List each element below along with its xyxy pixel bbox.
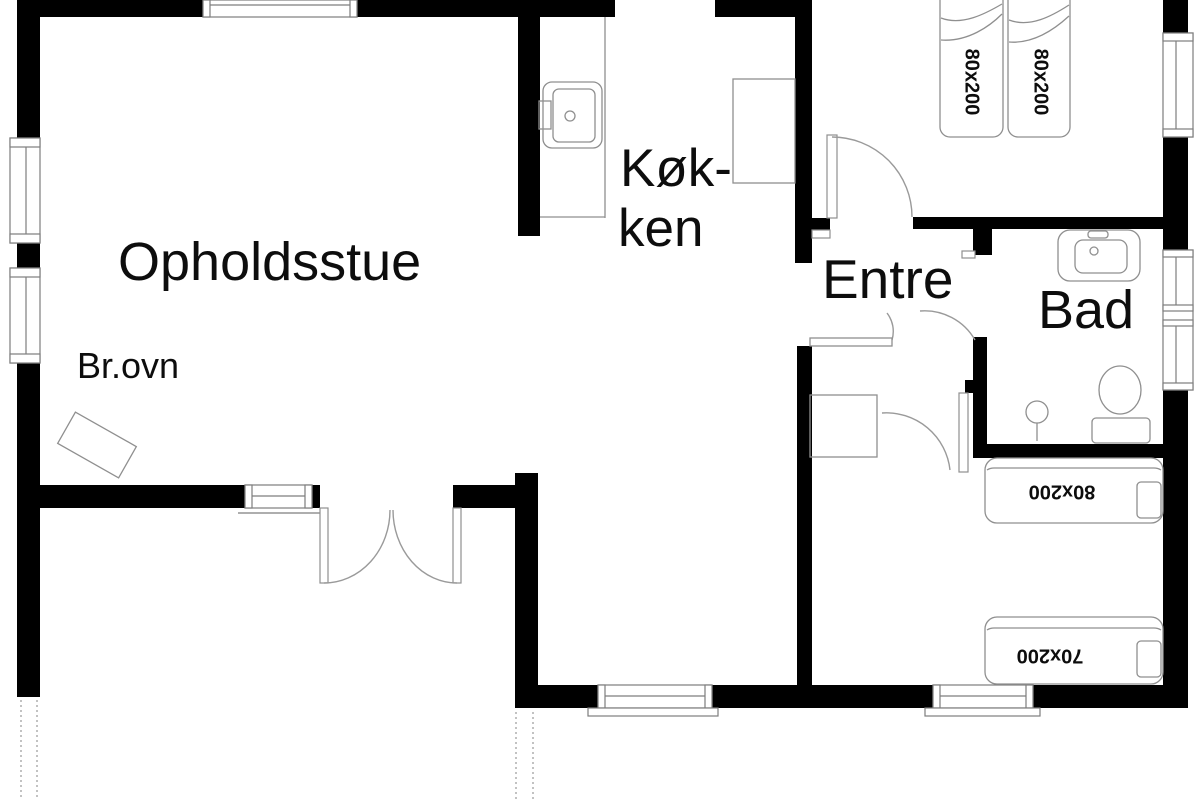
entry-shelf-arc [887,313,893,340]
floor-plan: Opholdsstue Br.ovn Køk- ken Entre Bad 80… [0,0,1200,800]
bed-size-label-bedroom2-bottom: 70x200 [1017,644,1084,667]
terrace-door-right-arc [393,510,457,583]
window-top [203,0,357,17]
entry-closet [810,395,877,457]
wall-top-left [17,0,203,17]
wall-left-upper [17,0,40,138]
wall-bottom-c [1033,685,1188,708]
wall-bathroom-west [973,337,987,445]
bedroom2-door-arc [882,413,950,470]
bedroom1-door-jamb [812,230,830,238]
window-left-lower [10,268,40,363]
wall-livingroom-south-a [40,485,245,508]
bed-size-label-bedroom1-right: 80x200 [1029,49,1052,116]
wall-bathroom-west-notch [965,380,973,393]
bedroom1-door-leaf [827,135,837,218]
window-bottom-entry [588,685,718,716]
wall-right-mid [1163,137,1188,250]
bathroom-label: Bad [1038,283,1134,337]
entry-shelf [810,338,892,346]
wall-left-mullion [17,243,40,268]
window-left-upper [10,138,40,243]
wall-right-lower [1163,390,1188,708]
wall-top-kitchen [715,0,812,17]
wall-left-lower [17,363,40,697]
floor-drain-icon [1026,401,1048,441]
window-bathroom [1163,250,1193,390]
wall-nub-bedroom1-door [812,218,830,230]
wood-stove-icon [58,412,137,478]
wall-bottom-b [712,685,933,708]
wall-top-middle [357,0,615,17]
kitchen-sink-icon [539,82,602,148]
bed-size-label-bedroom1-left: 80x200 [960,49,983,116]
wall-livingroom-kitchen [518,17,540,236]
wall-top-right-corner [1163,0,1188,33]
wood-stove-label: Br.ovn [77,348,179,384]
wall-kitchen-entry [795,17,812,263]
bathroom-door-arc-upper [920,311,975,340]
living-room-label: Opholdsstue [118,235,421,289]
bathroom-door-leaf [959,393,968,472]
terrace-door-left-arc [324,510,390,583]
bathroom-doorway-jamb [962,251,975,258]
wall-livingroom-south-b [312,485,320,508]
wall-entry-west [515,473,538,708]
wall-bathroom-west-stub [973,229,992,255]
roof-overhang-lines [21,700,533,799]
bed-size-label-bedroom2-top: 80x200 [1029,480,1096,503]
bedroom1-door-arc [832,137,912,217]
window-bottom-bedroom2 [925,685,1040,716]
wall-livingroom-south-c [453,485,515,508]
entry-label: Entre [822,252,953,307]
refrigerator-icon [733,79,795,183]
window-right-upper [1163,33,1193,137]
floor-plan-drawing [0,0,1200,800]
wall-bathroom-south [973,444,1163,458]
terrace-door-right-leaf [453,508,461,583]
terrace-door-left-leaf [320,508,328,583]
kitchen-label-line2: ken [618,202,703,255]
kitchen-label-line1: Køk- [620,142,732,195]
bathroom-sink-icon [1058,230,1140,281]
toilet-icon [1092,366,1150,443]
furniture [58,0,1163,684]
wall-bathroom-north [913,217,1163,229]
window-livingroom-south [238,485,322,513]
